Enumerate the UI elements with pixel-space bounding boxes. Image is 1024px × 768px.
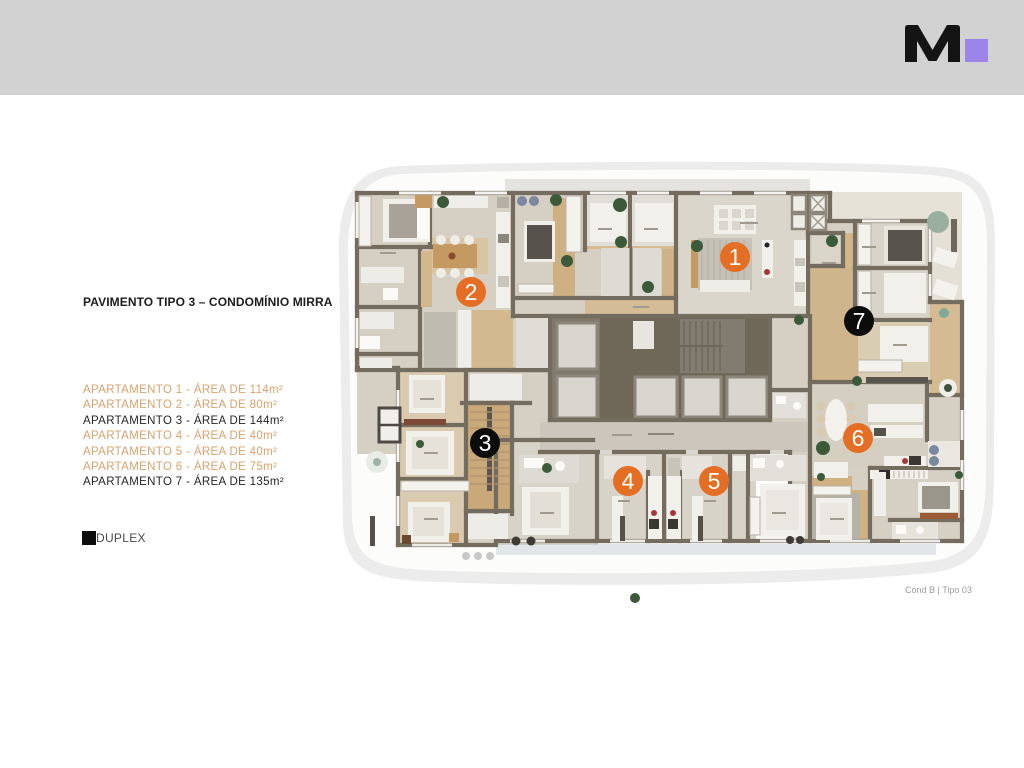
svg-text:5: 5 [708,468,721,494]
svg-text:6: 6 [852,425,865,451]
svg-text:3: 3 [479,430,492,456]
svg-text:7: 7 [853,308,866,334]
svg-text:1: 1 [729,244,742,270]
svg-text:2: 2 [465,279,478,305]
svg-text:4: 4 [622,468,635,494]
